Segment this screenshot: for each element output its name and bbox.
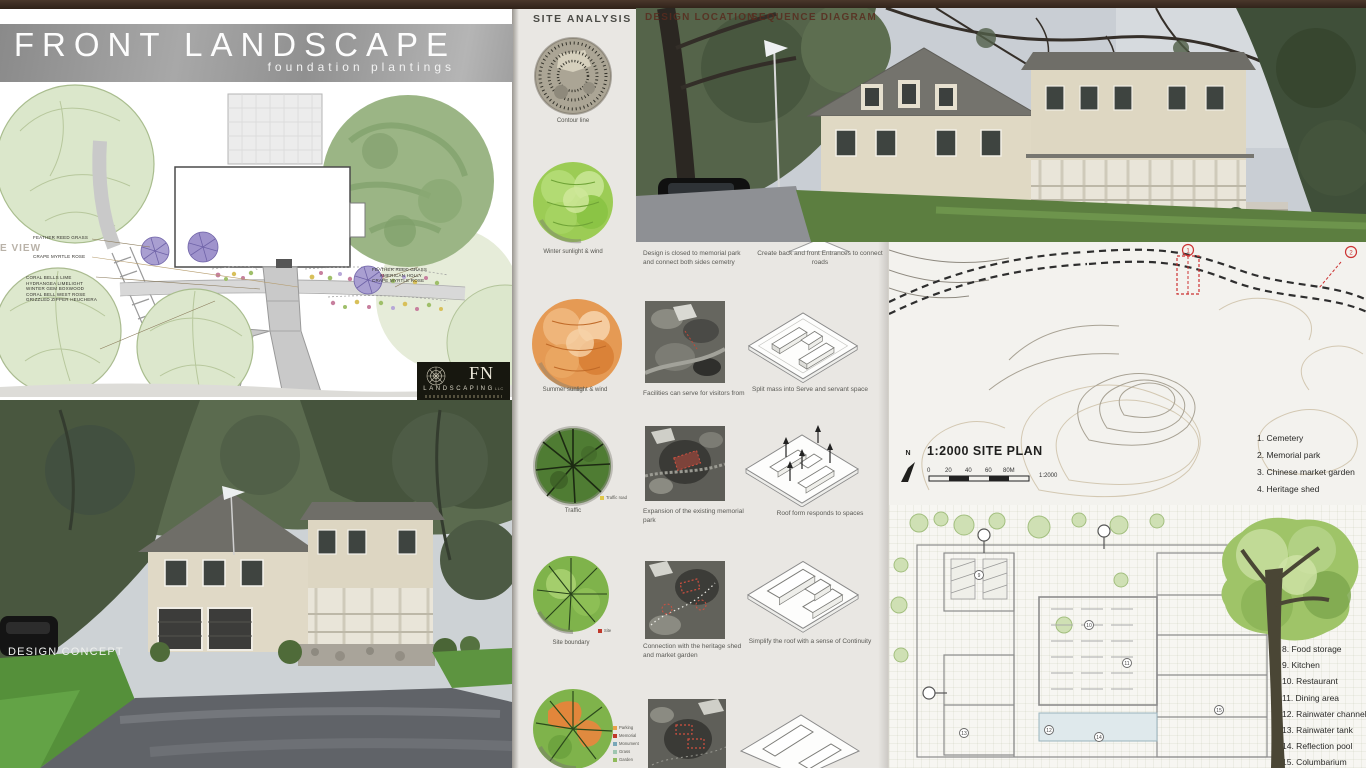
- iso-diagram-3: [742, 545, 864, 633]
- svg-text:9: 9: [978, 573, 981, 579]
- iso-caption: Simplify the roof with a sense of Contin…: [748, 637, 872, 646]
- north-arrow-label: N: [901, 450, 915, 457]
- design-concept-label: DESIGN CONCEPT: [8, 646, 124, 658]
- house-photo-front: [0, 400, 512, 768]
- site-plan-legend: 1. Cemetery 2. Memorial park 3. Chinese …: [1257, 430, 1355, 498]
- svg-text:11: 11: [1124, 661, 1129, 667]
- logo-monogram: FN: [469, 363, 494, 384]
- svg-text:40: 40: [965, 468, 972, 474]
- site-analysis-title: SITE ANALYSIS: [533, 13, 632, 25]
- circle-label: Winter sunlight & wind: [526, 249, 620, 255]
- summer-sun-circle: [530, 297, 624, 391]
- svg-text:12: 12: [1046, 728, 1052, 734]
- svg-text:1: 1: [1186, 249, 1190, 255]
- traffic-legend: Traffic road: [600, 495, 627, 500]
- aerial-photo-3: [645, 561, 725, 639]
- design-collage: FRONT LANDSCAPE foundation plantings: [0, 0, 1366, 768]
- design-location-photo: DESIGN LOCATION SEQUENCE DIAGRAM: [636, 8, 1366, 242]
- house-photo-street: [636, 8, 1366, 242]
- circle-label: Summer sunlight & wind: [528, 387, 622, 393]
- aerial-caption: Expansion of the existing memorial park: [643, 507, 747, 525]
- svg-text:15: 15: [1216, 708, 1222, 714]
- site-swatch: [598, 629, 602, 633]
- fn-landscaping-logo: FN LANDSCAPINGLLC: [417, 362, 510, 402]
- design-location-label: DESIGN LOCATION: [645, 12, 756, 23]
- iso-caption: Roof form responds to spaces: [764, 509, 876, 518]
- floor-plan-board: 9 10 11 12 13 14 15 8. Food storage 9. K…: [888, 505, 1366, 768]
- aerial-caption: Design is closed to memorial park and co…: [643, 249, 743, 267]
- circle-label: Site boundary: [531, 640, 611, 646]
- iso-diagram-2: [740, 421, 864, 507]
- program-legend: Parking Memorial Monument Grass Garden: [613, 725, 639, 762]
- aerial-photo-1: [645, 301, 725, 383]
- aerial-photo-2: [645, 426, 725, 501]
- svg-text:13: 13: [961, 731, 967, 737]
- iso-caption: Split mass into Serve and servant space: [750, 385, 870, 394]
- site-plan-board: 1 2 0 20 40 60 80M N 1:2000 SITE PLAN 1:…: [888, 240, 1366, 507]
- svg-text:2: 2: [1349, 251, 1353, 257]
- plant-label: CRAPE MYRTLE ROSE: [33, 254, 85, 260]
- svg-text:60: 60: [985, 468, 992, 474]
- svg-text:20: 20: [945, 468, 952, 474]
- circle-label: Traffic: [533, 508, 613, 514]
- iso-diagram-4: [735, 699, 863, 768]
- contour-circle: [533, 36, 613, 116]
- plant-label: FEATHER REED GRASS: [33, 235, 88, 241]
- svg-text:0: 0: [927, 468, 931, 474]
- floor-plan-legend: 8. Food storage 9. Kitchen 10. Restauran…: [1282, 641, 1366, 768]
- site-plan-title: 1:2000 SITE PLAN: [927, 444, 1043, 458]
- aerial-caption: Facilities can serve for visitors from: [643, 389, 747, 398]
- svg-text:14: 14: [1096, 735, 1102, 741]
- circle-label: Contour line: [533, 118, 613, 124]
- site-legend: Site: [598, 628, 611, 633]
- site-boundary-circle: [531, 554, 611, 634]
- scale-ratio: 1:2000: [1039, 473, 1057, 479]
- logo-name: LANDSCAPINGLLC: [417, 386, 510, 392]
- front-landscape-banner: FRONT LANDSCAPE foundation plantings: [0, 24, 513, 82]
- svg-text:80M: 80M: [1003, 468, 1015, 474]
- iso-caption: Create back and front Entrances to conne…: [754, 249, 886, 267]
- board-title: FRONT LANDSCAPE: [0, 24, 513, 60]
- svg-text:10: 10: [1086, 623, 1092, 629]
- traffic-circle: [533, 426, 613, 506]
- winter-sun-circle: [531, 160, 615, 244]
- iso-diagram-1: [743, 301, 863, 383]
- aerial-caption: Connection with the heritage shed and ma…: [643, 642, 751, 660]
- mandala-icon: [423, 365, 449, 387]
- diagram-label: SEQUENCE DIAGRAM: [751, 12, 877, 23]
- design-concept-photo: DESIGN CONCEPT: [0, 400, 512, 768]
- plant-label-group: CORAL BELLS LIME HYDRANGEA LIMELIGHT WIN…: [26, 275, 97, 303]
- edge-view-label: E VIEW: [0, 243, 41, 254]
- program-circle: [530, 681, 616, 768]
- front-landscape-board: FRONT LANDSCAPE foundation plantings: [0, 9, 512, 400]
- logo-tagline: [425, 395, 502, 398]
- traffic-road-swatch: [600, 496, 604, 500]
- aerial-photo-4: [648, 699, 726, 768]
- plant-label-group-right: FEATHER REED GRASS AMERICAN HOLLY CRAPE …: [372, 267, 422, 284]
